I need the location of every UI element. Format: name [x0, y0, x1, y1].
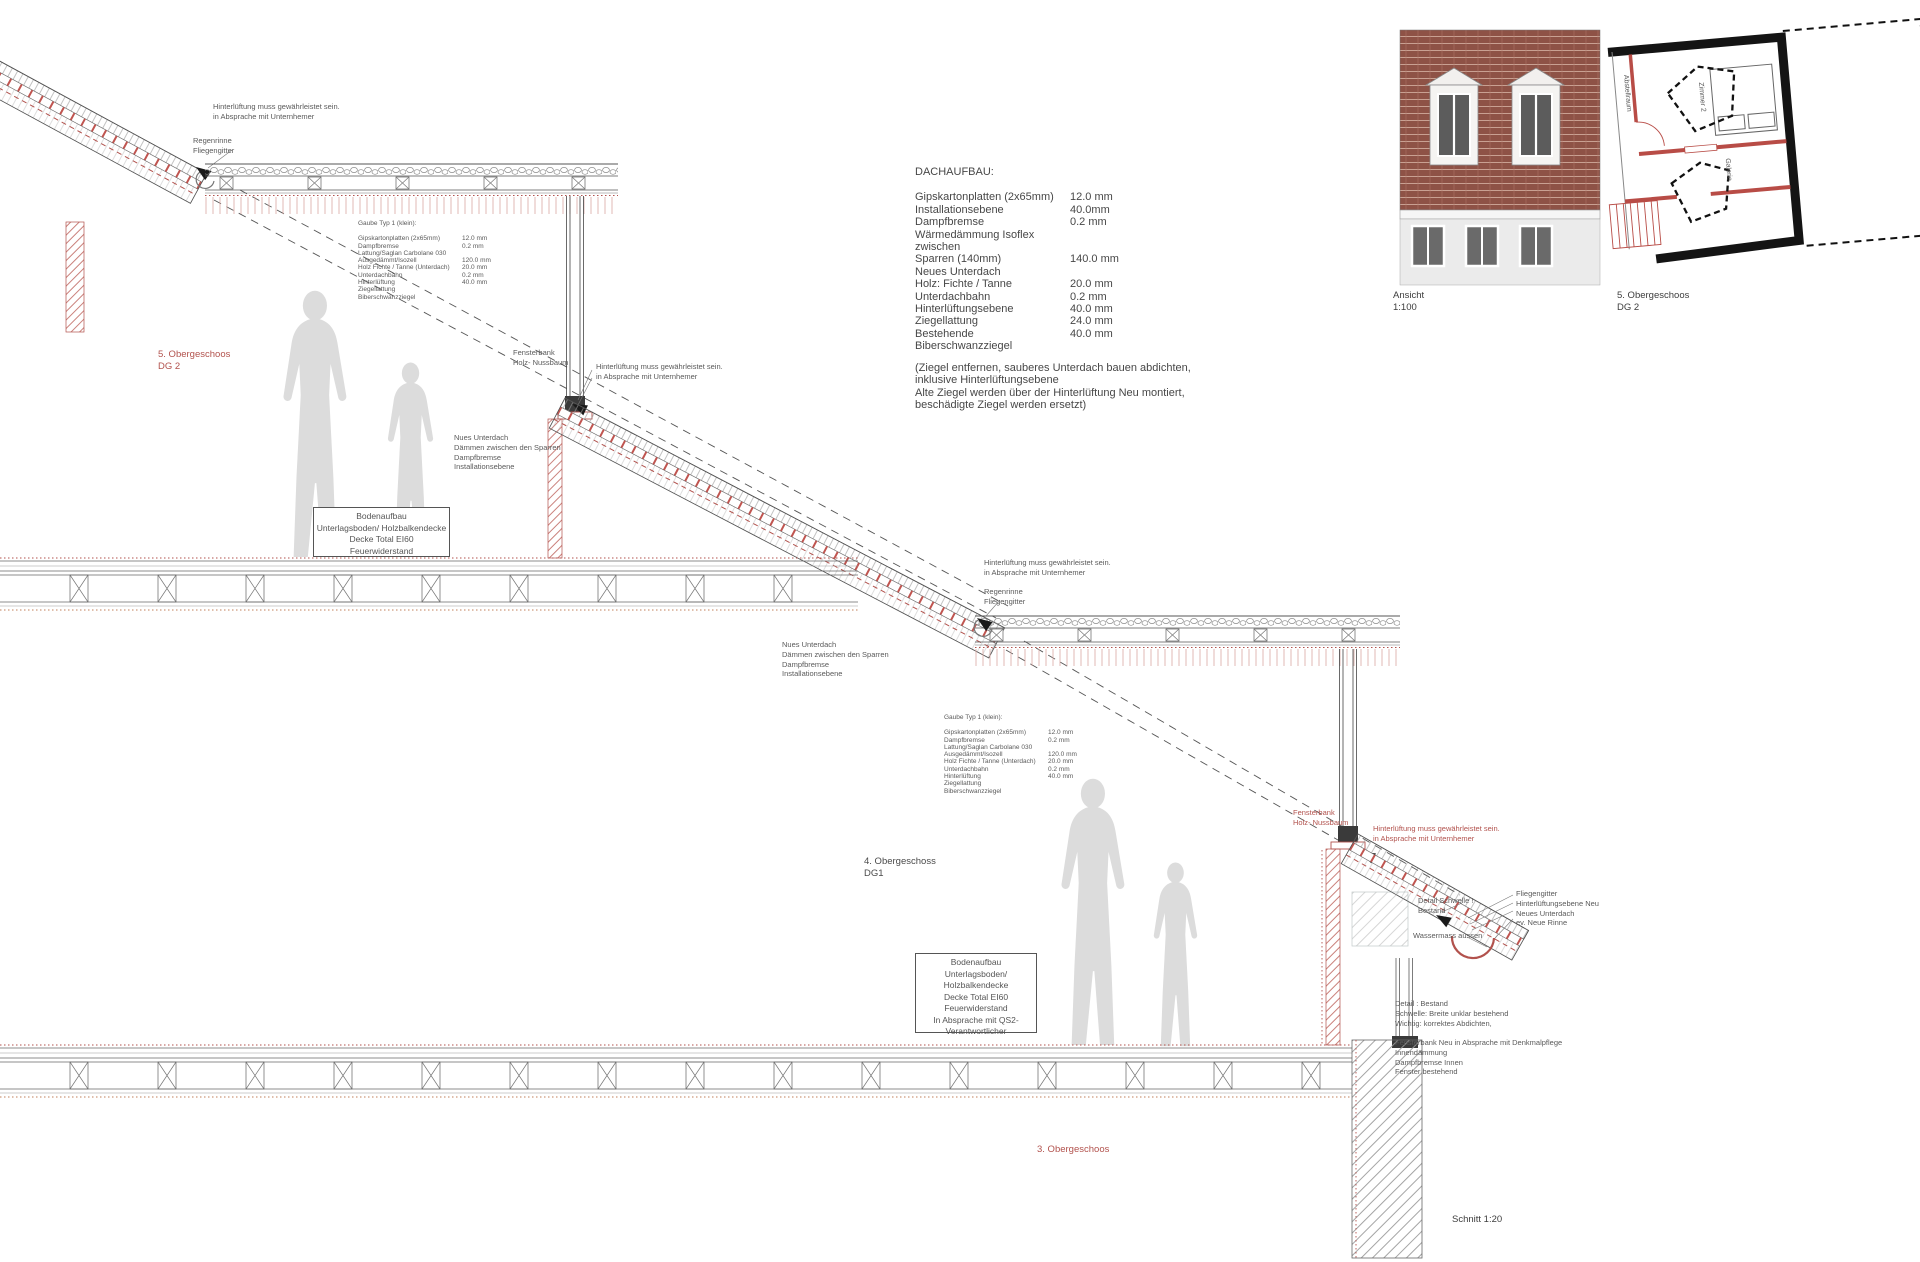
- note-water-dim: Wassermass aussen: [1413, 931, 1482, 941]
- note-gutter-1: Regenrinne Fliegengitter: [193, 136, 234, 156]
- facade-dormer: [1508, 68, 1564, 165]
- note-gutter-2: Regenrinne Fliegengitter: [984, 587, 1025, 607]
- plan-door-arc: [1636, 120, 1664, 148]
- plan-room-label: Abstellraum: [1622, 75, 1632, 113]
- plan-stair: [1609, 201, 1661, 249]
- note-ventilation-3: Hinterlüftung muss gewährleistet sein. i…: [984, 558, 1111, 578]
- note-windowsill-1: Fensterbank Holz- Nussbaum: [513, 348, 568, 368]
- note-windowsill-2-red: Fensterbank Holz- Nussbaum: [1293, 808, 1348, 828]
- view-label-schnitt: Schnitt 1:20: [1452, 1214, 1502, 1226]
- floor-slab-lower: [0, 1045, 1352, 1097]
- red-wall-section: [1326, 849, 1340, 1045]
- note-new-underroof-2: Nues Unterdach Dämmen zwischen den Sparr…: [782, 640, 889, 679]
- floor-slab-upper: [0, 558, 858, 610]
- view-label-plan: 5. Obergeschoos DG 2: [1617, 290, 1689, 315]
- dormer-roof-upper: [205, 164, 618, 214]
- note-ventilation-2: Hinterlüftung muss gewährleistet sein. i…: [596, 362, 723, 382]
- plan-bed: [1710, 64, 1778, 135]
- facade-elevation: [1400, 30, 1600, 285]
- level-label-og3: 3. Obergeschoos: [1037, 1144, 1109, 1156]
- gaube-title: Gaube Typ 1 (klein):: [944, 714, 1114, 721]
- plan-room-label: Zimmer 2: [1697, 82, 1707, 112]
- plan-room-label: Galerie: [1724, 158, 1733, 181]
- note-new-underroof-1: Nues Unterdach Dämmen zwischen den Sparr…: [454, 433, 561, 472]
- facade-dormer: [1426, 68, 1482, 165]
- floor-plan: Abstellraum Zimmer 2 Galerie: [1596, 19, 1920, 263]
- plan-dashed-extent: [1783, 19, 1920, 246]
- gaube-spec-block-lower: Gaube Typ 1 (klein): Gipskartonplatten (…: [944, 714, 1114, 795]
- roof-slope-middle: [549, 398, 1004, 658]
- cornice: [1400, 210, 1600, 219]
- sill-detail-block: [1352, 892, 1408, 946]
- dormer-roof-lower: [975, 616, 1400, 666]
- drawing-sheet: Abstellraum Zimmer 2 Galerie DACHAUFBAU:…: [0, 0, 1920, 1262]
- view-label-ansicht: Ansicht 1:100: [1393, 290, 1424, 315]
- gaube-spec-block-upper: Gaube Typ 1 (klein): Gipskartonplatten (…: [358, 220, 528, 301]
- note-eaves-layers: Fliegengitter Hinterlüftungsebene Neu Ne…: [1516, 889, 1599, 928]
- dachaufbau-spec-block: DACHAUFBAU: Gipskartonplatten (2x65mm)12…: [915, 166, 1225, 411]
- level-label-dg1: 4. Obergeschoss DG1: [864, 856, 936, 880]
- note-detail-sill: Detail Schwelle ! Bestand: [1418, 896, 1473, 916]
- dachaufbau-note: (Ziegel entfernen, sauberes Unterdach ba…: [915, 362, 1225, 412]
- roof-slope-upper: [0, 58, 207, 203]
- person-silhouette: [1154, 862, 1197, 1046]
- level-label-dg2: 5. Obergeschoos DG 2: [158, 349, 230, 373]
- person-silhouette: [1061, 779, 1124, 1045]
- gaube-title: Gaube Typ 1 (klein):: [358, 220, 528, 227]
- dachaufbau-title: DACHAUFBAU:: [915, 166, 1225, 178]
- red-wall-section: [66, 222, 84, 332]
- note-ventilation-1: Hinterlüftung muss gewährleistet sein. i…: [213, 102, 340, 122]
- note-detail-bestand: Detail : Bestand Schwelle: Breite unklar…: [1395, 999, 1562, 1077]
- bodenaufbau-box-lower: Bodenaufbau Unterlagsboden/ Holzbalkende…: [915, 953, 1037, 1033]
- bodenaufbau-box-upper: Bodenaufbau Unterlagsboden/ Holzbalkende…: [313, 507, 450, 557]
- facade-windows: [1412, 226, 1552, 266]
- note-ventilation-4-red: Hinterlüftung muss gewährleistet sein. i…: [1373, 824, 1500, 844]
